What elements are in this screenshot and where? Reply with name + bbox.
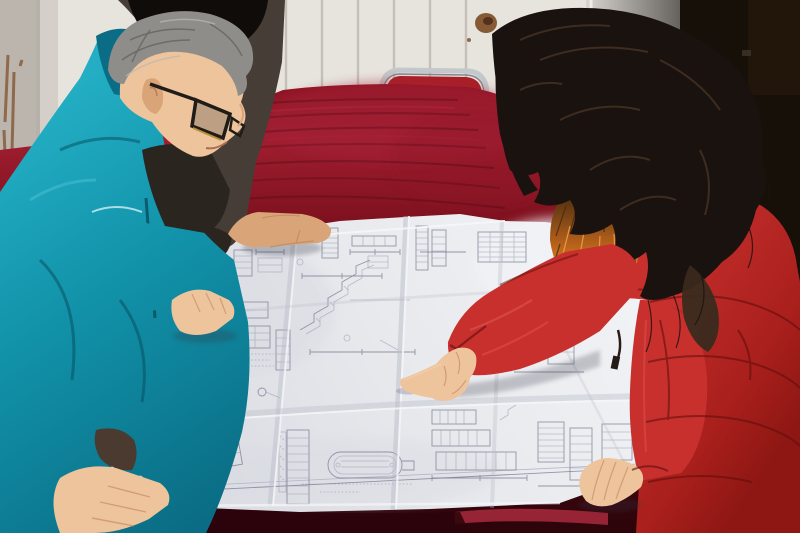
panel-latch-mark [742,50,751,56]
paper-shade-bottom [200,437,500,507]
dark-panel-brown-corner [748,0,800,95]
photo-scene [0,0,800,533]
scene-canvas [0,0,800,533]
